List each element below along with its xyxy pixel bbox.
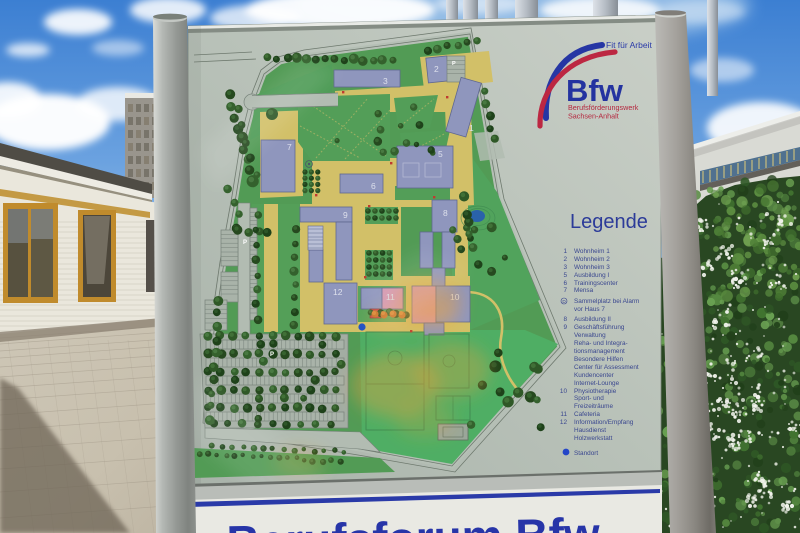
svg-text:7: 7 <box>563 287 567 294</box>
svg-text:P: P <box>452 61 456 67</box>
svg-text:6: 6 <box>371 181 376 191</box>
svg-text:Fit für Arbeit: Fit für Arbeit <box>606 40 652 50</box>
svg-text:P: P <box>270 352 274 358</box>
svg-text:Information/Empfang: Information/Empfang <box>574 419 634 426</box>
svg-text:Hausdienst: Hausdienst <box>574 427 606 434</box>
svg-text:1: 1 <box>563 248 567 255</box>
svg-text:Sport- und: Sport- und <box>574 395 604 402</box>
svg-text:2: 2 <box>434 64 439 74</box>
svg-text:P: P <box>243 240 247 246</box>
svg-text:Ausbildung I: Ausbildung I <box>574 272 609 279</box>
svg-text:Wohnheim 1: Wohnheim 1 <box>574 248 610 255</box>
svg-text:Wohnheim 2: Wohnheim 2 <box>574 256 610 263</box>
svg-text:Sachsen-Anhalt: Sachsen-Anhalt <box>568 112 619 121</box>
svg-text:3: 3 <box>383 76 388 86</box>
svg-text:Physiotherapie: Physiotherapie <box>574 388 617 395</box>
svg-text:9: 9 <box>343 210 348 220</box>
svg-text:Wohnheim 3: Wohnheim 3 <box>574 264 610 271</box>
svg-text:tionsmanagement: tionsmanagement <box>574 348 625 355</box>
svg-text:7: 7 <box>287 142 292 152</box>
svg-text:Mensa: Mensa <box>574 287 594 294</box>
svg-text:12: 12 <box>333 287 343 297</box>
svg-text:Internet-Lounge: Internet-Lounge <box>574 380 620 387</box>
svg-text:2: 2 <box>563 256 567 263</box>
svg-text:Freizeiträume: Freizeiträume <box>574 403 614 410</box>
svg-text:Holzwerkstatt: Holzwerkstatt <box>574 435 613 442</box>
svg-text:Trainingscenter: Trainingscenter <box>574 280 619 287</box>
svg-text:Center für Assessment: Center für Assessment <box>574 364 639 371</box>
svg-text:5: 5 <box>438 149 443 159</box>
svg-text:Reha- und Integra-: Reha- und Integra- <box>574 340 628 347</box>
svg-text:Sammelplatz bei Alarm: Sammelplatz bei Alarm <box>574 298 639 305</box>
svg-text:5: 5 <box>563 272 567 279</box>
svg-text:vor Haus 7: vor Haus 7 <box>574 306 605 313</box>
svg-text:3: 3 <box>563 264 567 271</box>
svg-text:Legende: Legende <box>570 211 648 233</box>
svg-text:8: 8 <box>443 208 448 218</box>
svg-text:9: 9 <box>563 324 567 331</box>
svg-text:12: 12 <box>560 419 568 426</box>
svg-text:10: 10 <box>560 388 568 395</box>
svg-text:1: 1 <box>469 123 474 133</box>
svg-text:11: 11 <box>560 411 567 418</box>
svg-text:Cafeteria: Cafeteria <box>574 411 600 418</box>
svg-text:6: 6 <box>563 280 567 287</box>
svg-text:Ausbildung II: Ausbildung II <box>574 316 611 323</box>
svg-text:Geschäftsführung: Geschäftsführung <box>574 324 625 331</box>
svg-text:Standort: Standort <box>574 450 598 457</box>
svg-text:8: 8 <box>563 316 567 323</box>
svg-text:Kundencenter: Kundencenter <box>574 372 615 379</box>
svg-text:Besondere Hilfen: Besondere Hilfen <box>574 356 623 363</box>
svg-text:Verwaltung: Verwaltung <box>574 332 606 339</box>
